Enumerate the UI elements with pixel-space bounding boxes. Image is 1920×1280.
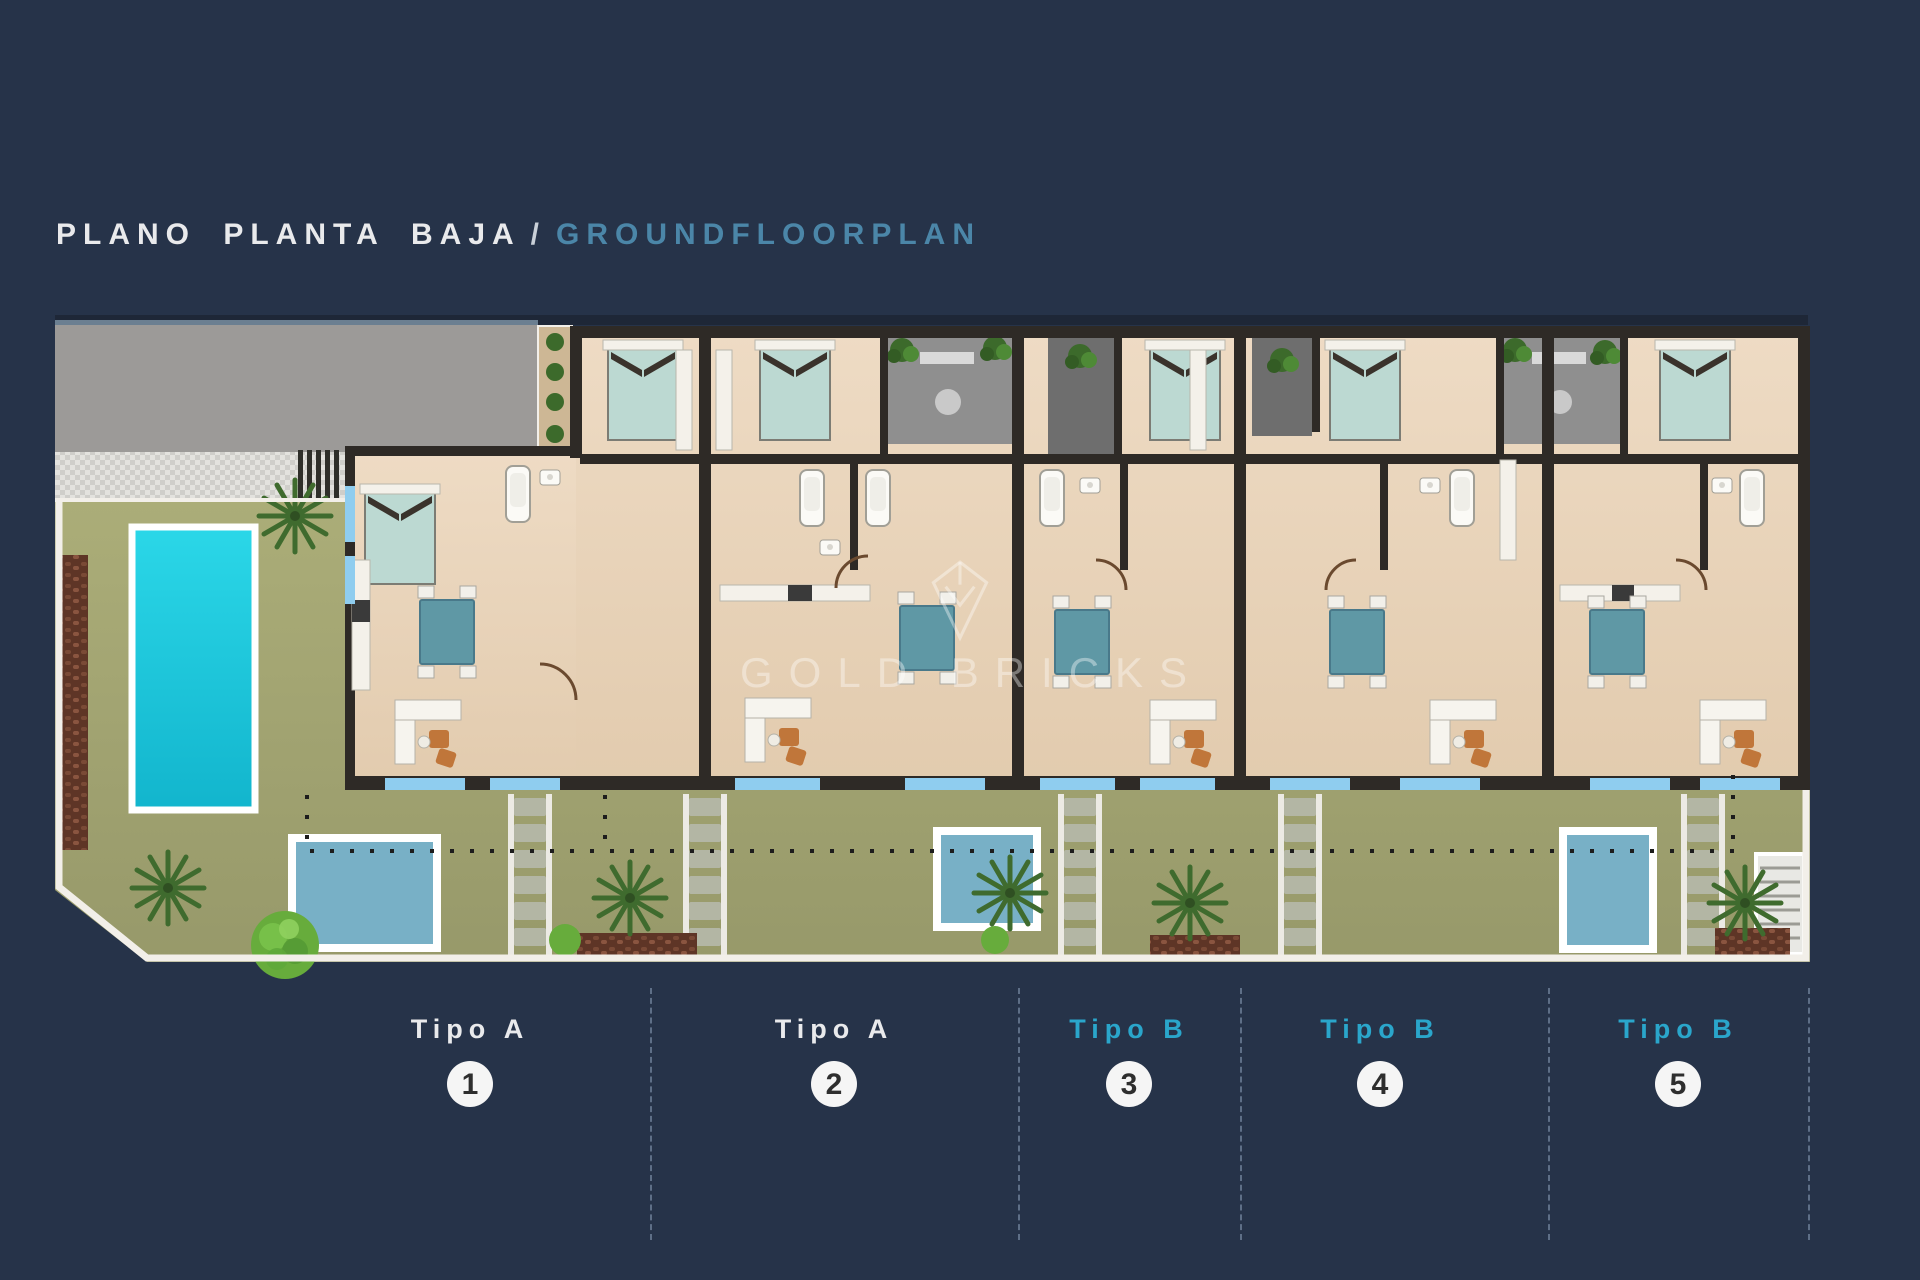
bathtub-unit5 bbox=[1740, 470, 1764, 526]
sink-unit4 bbox=[1420, 478, 1440, 493]
bed-unit1 bbox=[603, 340, 683, 440]
bathtub-unit4 bbox=[1450, 470, 1474, 526]
small-bush bbox=[981, 926, 1009, 954]
unit-type-label: Tipo A bbox=[360, 1014, 580, 1045]
unit-type-label: Tipo A bbox=[724, 1014, 944, 1045]
unit-number: 5 bbox=[1670, 1068, 1687, 1101]
bed-unit3 bbox=[1145, 340, 1225, 440]
unit-number-badge: 3 bbox=[1106, 1061, 1152, 1107]
bathtub-unit2b bbox=[866, 470, 890, 526]
sink-unit1 bbox=[540, 470, 560, 485]
bush-tree bbox=[251, 911, 319, 979]
plot-divider bbox=[1240, 988, 1242, 1240]
plunge-pool-unit5 bbox=[1563, 831, 1653, 949]
mulch-strip bbox=[62, 555, 88, 850]
unit-number-badge: 5 bbox=[1655, 1061, 1701, 1107]
unit-type-label: Tipo B bbox=[1270, 1014, 1490, 1045]
dining-table-unit5 bbox=[1588, 596, 1646, 688]
bed-unit4 bbox=[1325, 340, 1405, 440]
unit-number: 4 bbox=[1372, 1068, 1389, 1101]
unit-label-3: Tipo B 3 bbox=[1019, 1014, 1239, 1107]
unit-label-5: Tipo B 5 bbox=[1568, 1014, 1788, 1107]
sink-unit5 bbox=[1712, 478, 1732, 493]
unit-number: 1 bbox=[462, 1068, 479, 1101]
unit-type-label: Tipo B bbox=[1568, 1014, 1788, 1045]
plot-divider bbox=[650, 988, 652, 1240]
small-bush bbox=[549, 924, 581, 956]
bed-unit1-wing bbox=[360, 484, 440, 584]
plot-divider bbox=[1548, 988, 1550, 1240]
sink-unit3 bbox=[1080, 478, 1100, 493]
floorplan-page: PLANO PLANTA BAJA/GROUNDFLOORPLAN bbox=[0, 0, 1920, 1280]
unit-number: 3 bbox=[1121, 1068, 1138, 1101]
unit-number-badge: 4 bbox=[1357, 1061, 1403, 1107]
driveway bbox=[55, 322, 538, 452]
dining-table-unit1 bbox=[418, 586, 476, 678]
bathtub-unit3 bbox=[1040, 470, 1064, 526]
unit-label-4: Tipo B 4 bbox=[1270, 1014, 1490, 1107]
driveway-curb bbox=[55, 320, 538, 325]
unit-label-2: Tipo A 2 bbox=[724, 1014, 944, 1107]
plot-divider bbox=[1808, 988, 1810, 1240]
bed-unit5 bbox=[1655, 340, 1735, 440]
large-pool bbox=[132, 527, 255, 810]
bathtub-unit1 bbox=[506, 466, 530, 522]
unit-label-1: Tipo A 1 bbox=[360, 1014, 580, 1107]
unit-number-badge: 2 bbox=[811, 1061, 857, 1107]
bed-unit2 bbox=[755, 340, 835, 440]
bathtub-unit2 bbox=[800, 470, 824, 526]
dining-table-unit4 bbox=[1328, 596, 1386, 688]
dining-table-unit2 bbox=[898, 592, 956, 684]
unit-type-label: Tipo B bbox=[1019, 1014, 1239, 1045]
unit-number-badge: 1 bbox=[447, 1061, 493, 1107]
unit-number: 2 bbox=[826, 1068, 843, 1101]
sink-unit2 bbox=[820, 540, 840, 555]
dining-table-unit3 bbox=[1053, 596, 1111, 688]
